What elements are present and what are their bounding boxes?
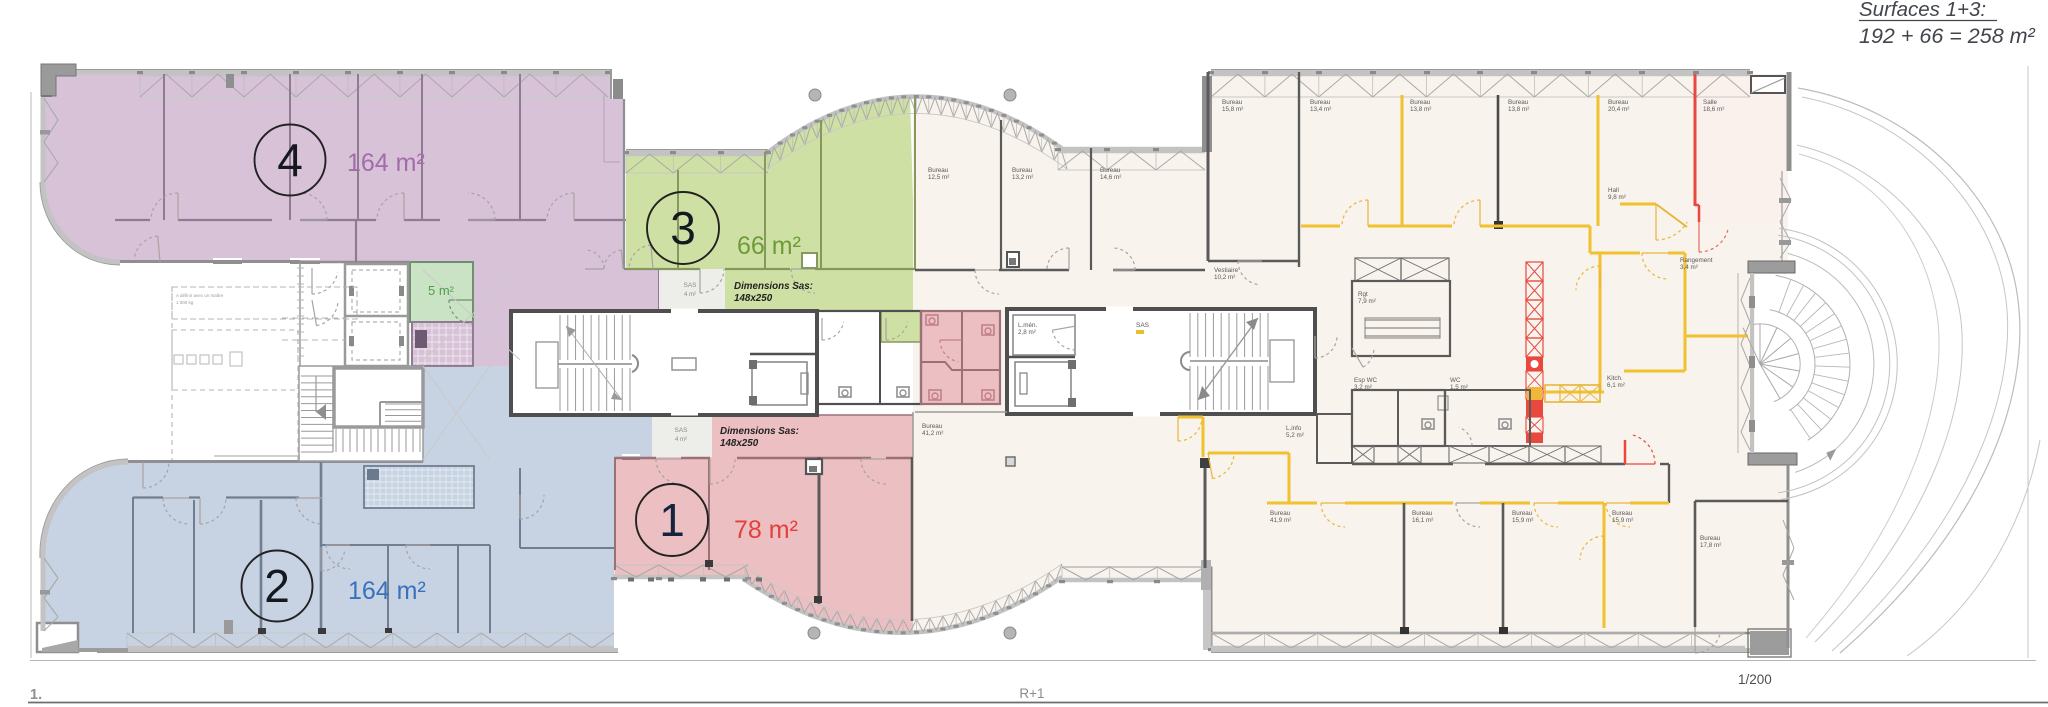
svg-text:13,4 m²: 13,4 m² [1310,106,1331,113]
svg-text:15,9 m²: 15,9 m² [1512,517,1533,524]
svg-text:4 m²: 4 m² [684,292,696,298]
svg-text:1 000 kg: 1 000 kg [176,300,194,305]
svg-text:41,9 m²: 41,9 m² [1270,517,1291,524]
svg-text:Bureau: Bureau [1612,510,1633,517]
svg-text:5 m²: 5 m² [428,283,455,298]
svg-text:L.mén.: L.mén. [1018,322,1038,329]
svg-text:Surfaces 1+3:: Surfaces 1+3: [1859,0,1986,21]
svg-text:2: 2 [264,560,290,612]
svg-text:Dimensions Sas:: Dimensions Sas: [720,426,799,437]
svg-text:20,4 m²: 20,4 m² [1608,106,1629,113]
svg-text:13,8 m²: 13,8 m² [1410,106,1431,113]
svg-text:164 m²: 164 m² [347,149,425,177]
svg-text:SAS: SAS [674,427,688,434]
svg-text:Bureau: Bureau [1270,510,1291,517]
svg-text:Bureau: Bureau [1508,99,1529,106]
svg-text:Bureau: Bureau [1512,510,1533,517]
svg-text:Bureau: Bureau [928,167,949,174]
svg-text:12,5 m²: 12,5 m² [928,174,949,181]
svg-text:3,4 m²: 3,4 m² [1680,264,1698,271]
svg-text:Esp WC: Esp WC [1354,377,1378,384]
svg-text:1: 1 [659,494,685,546]
svg-text:17,8 m²: 17,8 m² [1700,542,1721,549]
svg-text:10,2 m²: 10,2 m² [1214,274,1235,281]
svg-text:66 m²: 66 m² [737,232,801,260]
svg-text:Bureau: Bureau [1310,99,1331,106]
svg-text:1/200: 1/200 [1738,672,1772,687]
svg-text:13,2 m²: 13,2 m² [1012,174,1033,181]
svg-text:Vestiaire: Vestiaire [1214,267,1239,274]
svg-text:41,2 m²: 41,2 m² [922,430,943,437]
svg-text:L.info: L.info [1286,425,1302,432]
svg-text:3: 3 [670,202,696,254]
svg-text:14,6 m²: 14,6 m² [1100,174,1121,181]
svg-text:78 m²: 78 m² [734,516,798,544]
svg-text:Hall: Hall [1608,187,1619,194]
svg-text:Dimensions Sas:: Dimensions Sas: [734,281,813,292]
svg-text:Bureau: Bureau [922,423,943,430]
svg-text:192 + 66 = 258 m²: 192 + 66 = 258 m² [1859,24,2036,48]
svg-text:Bureau: Bureau [1100,167,1121,174]
svg-text:A définir avec un maître: A définir avec un maître [176,293,224,298]
svg-text:3,2 m²: 3,2 m² [1354,384,1372,391]
svg-text:164 m²: 164 m² [348,577,426,605]
svg-text:16,1 m²: 16,1 m² [1412,517,1433,524]
svg-text:Salle: Salle [1703,99,1718,106]
svg-text:Bureau: Bureau [1410,99,1431,106]
svg-text:4 m²: 4 m² [675,437,687,443]
svg-text:7,9 m²: 7,9 m² [1358,298,1376,305]
svg-text:Bureau: Bureau [1412,510,1433,517]
svg-text:SAS: SAS [683,282,697,289]
svg-text:15,9 m²: 15,9 m² [1612,517,1633,524]
svg-text:13,8 m²: 13,8 m² [1508,106,1529,113]
svg-text:Bureau: Bureau [1608,99,1629,106]
svg-text:1.: 1. [30,687,42,703]
svg-text:Bureau: Bureau [1012,167,1033,174]
svg-text:148x250: 148x250 [734,293,773,304]
svg-text:Bureau: Bureau [1222,99,1243,106]
svg-text:5,2 m²: 5,2 m² [1286,432,1304,439]
svg-text:SAS: SAS [1136,322,1150,329]
svg-text:9,8 m²: 9,8 m² [1608,194,1626,201]
svg-text:R+1: R+1 [1019,686,1044,701]
svg-text:148x250: 148x250 [720,438,759,449]
svg-text:Rangement: Rangement [1680,257,1713,264]
svg-text:15,8 m²: 15,8 m² [1222,106,1243,113]
svg-text:Kitch.: Kitch. [1607,375,1623,382]
svg-text:WC: WC [1450,377,1461,384]
svg-text:Rgt: Rgt [1358,291,1368,298]
svg-text:Bureau: Bureau [1700,535,1721,542]
svg-text:18,6 m²: 18,6 m² [1703,106,1724,113]
svg-text:6,1 m²: 6,1 m² [1607,382,1625,389]
svg-text:2,8 m²: 2,8 m² [1018,329,1036,336]
svg-text:4: 4 [277,134,303,186]
